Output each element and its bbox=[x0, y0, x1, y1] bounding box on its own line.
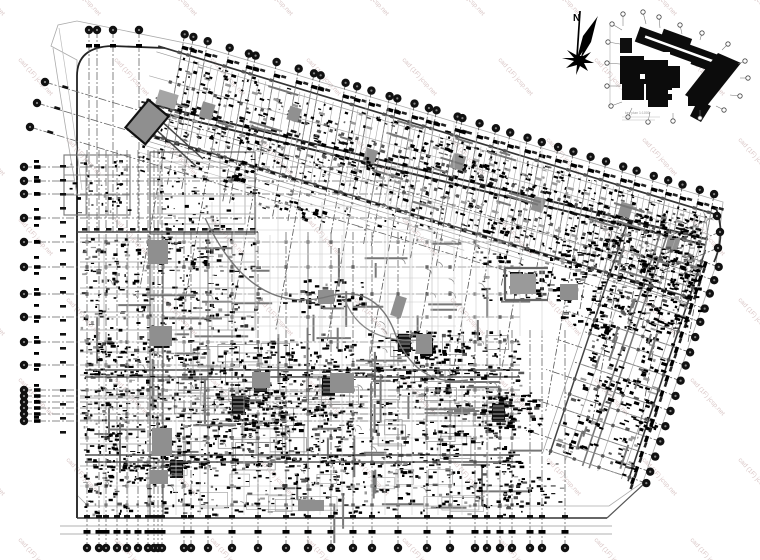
svg-text:cad (1F) jcsp.net: cad (1F) jcsp.net bbox=[737, 137, 760, 178]
svg-text:cad (1F) jcsp.net: cad (1F) jcsp.net bbox=[65, 0, 103, 17]
svg-text:cad (1F) jcsp.net: cad (1F) jcsp.net bbox=[593, 537, 631, 560]
svg-text:cad (1F) jcsp.net: cad (1F) jcsp.net bbox=[545, 457, 583, 498]
svg-text:cad (1F) jcsp.net: cad (1F) jcsp.net bbox=[641, 457, 679, 498]
svg-text:cad (1F) jcsp.net: cad (1F) jcsp.net bbox=[113, 217, 151, 258]
svg-text:cad (1F) jcsp.net: cad (1F) jcsp.net bbox=[737, 297, 760, 338]
svg-text:cad (1F) jcsp.net: cad (1F) jcsp.net bbox=[17, 217, 55, 258]
svg-text:cad (1F) jcsp.net: cad (1F) jcsp.net bbox=[161, 0, 199, 17]
svg-text:cad (1F) jcsp.net: cad (1F) jcsp.net bbox=[401, 537, 439, 560]
svg-text:cad (1F) jcsp.net: cad (1F) jcsp.net bbox=[0, 457, 6, 498]
svg-text:cad (1F) jcsp.net: cad (1F) jcsp.net bbox=[449, 0, 487, 17]
svg-text:cad (1F) jcsp.net: cad (1F) jcsp.net bbox=[0, 297, 6, 338]
svg-text:cad (1F) jcsp.net: cad (1F) jcsp.net bbox=[0, 0, 6, 17]
svg-text:cad (1F) jcsp.net: cad (1F) jcsp.net bbox=[737, 457, 760, 498]
svg-text:cad (1F) jcsp.net: cad (1F) jcsp.net bbox=[209, 537, 247, 560]
svg-text:cad (1F) jcsp.net: cad (1F) jcsp.net bbox=[689, 537, 727, 560]
svg-text:cad (1F) jcsp.net: cad (1F) jcsp.net bbox=[401, 57, 439, 98]
svg-text:cad (1F) jcsp.net: cad (1F) jcsp.net bbox=[0, 137, 6, 178]
svg-text:cad (1F) jcsp.net: cad (1F) jcsp.net bbox=[113, 57, 151, 98]
svg-text:cad (1F) jcsp.net: cad (1F) jcsp.net bbox=[689, 377, 727, 418]
svg-text:cad (1F) jcsp.net: cad (1F) jcsp.net bbox=[641, 137, 679, 178]
svg-text:cad (1F) jcsp.net: cad (1F) jcsp.net bbox=[17, 57, 55, 98]
svg-text:cad (1F) jcsp.net: cad (1F) jcsp.net bbox=[305, 217, 343, 258]
svg-text:cad (1F) jcsp.net: cad (1F) jcsp.net bbox=[353, 0, 391, 17]
svg-text:cad (1F) jcsp.net: cad (1F) jcsp.net bbox=[737, 0, 760, 17]
svg-text:cad (1F) jcsp.net: cad (1F) jcsp.net bbox=[257, 0, 295, 17]
svg-text:cad (1F) jcsp.net: cad (1F) jcsp.net bbox=[17, 537, 55, 560]
svg-text:cad (1F) jcsp.net: cad (1F) jcsp.net bbox=[497, 57, 535, 98]
